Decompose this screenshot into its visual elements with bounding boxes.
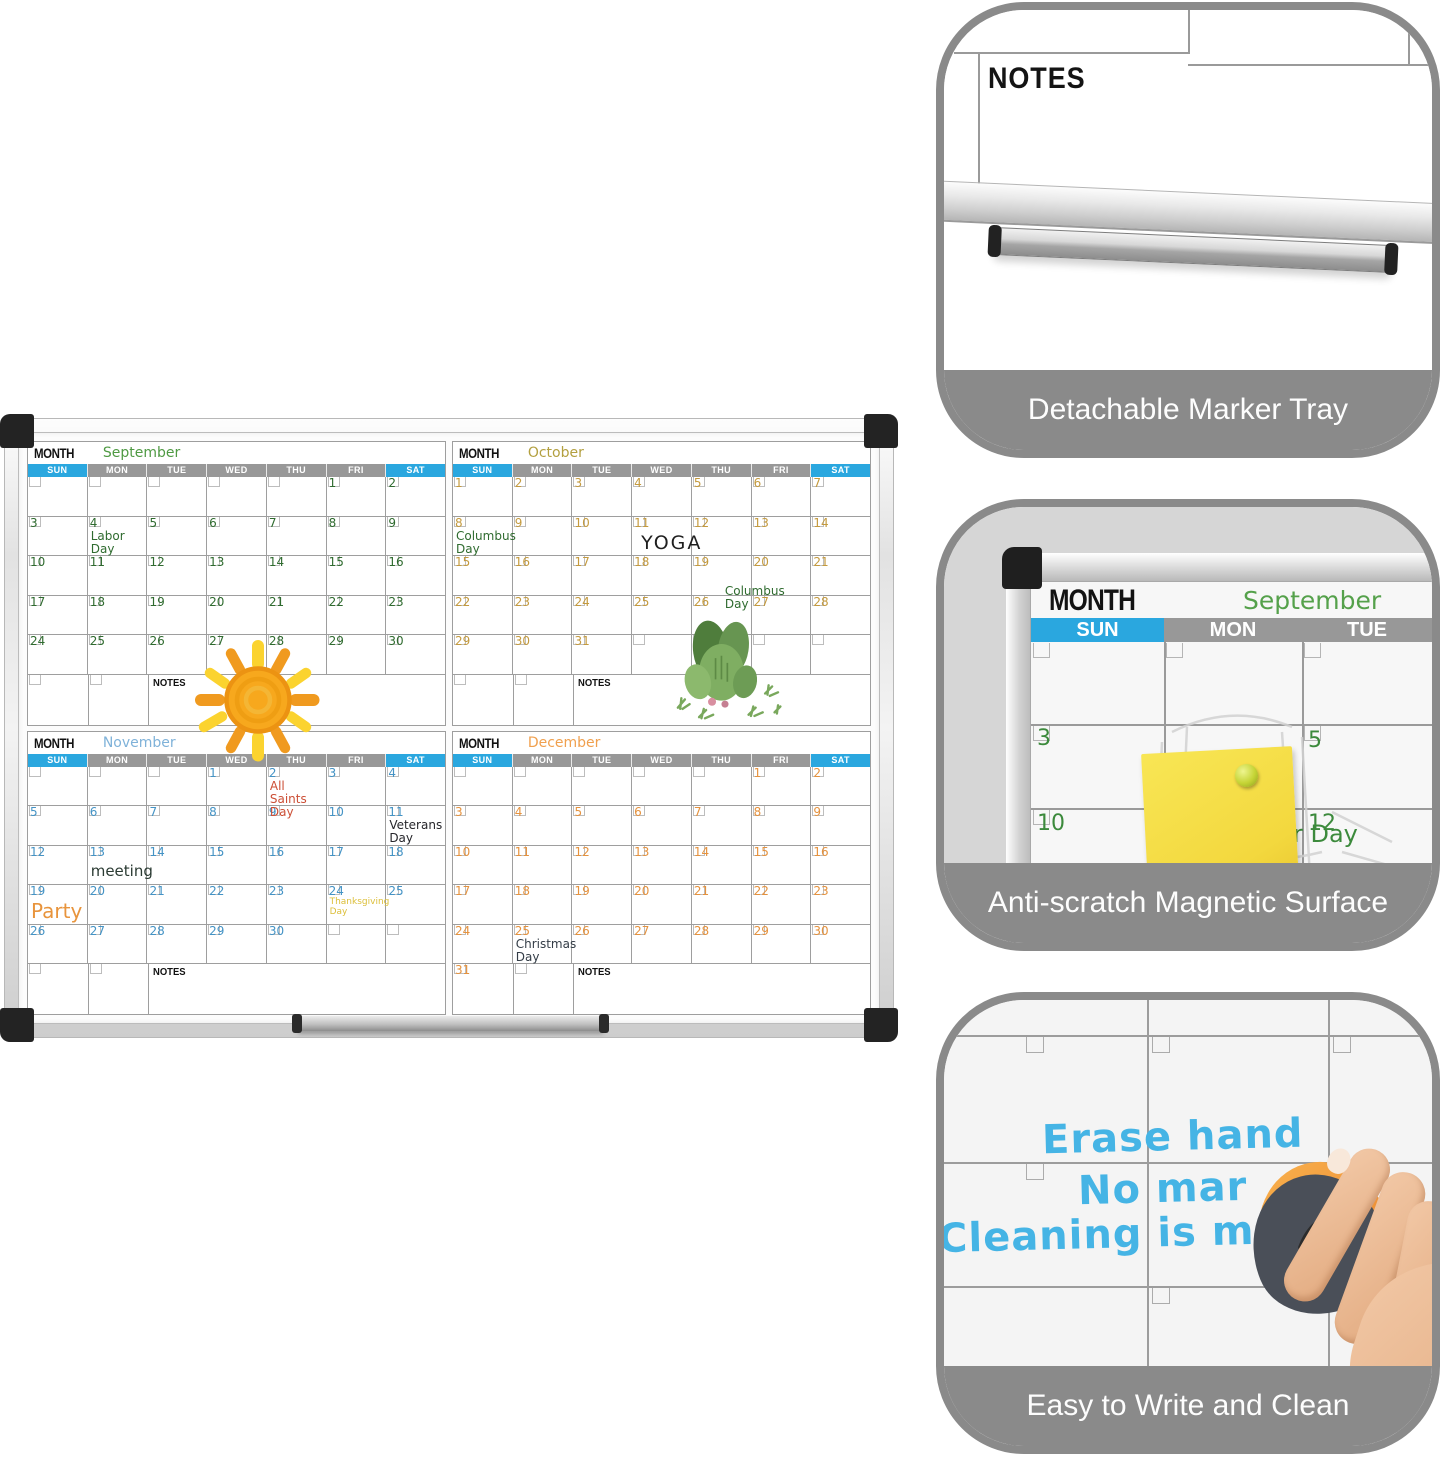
day-number: 23 <box>515 596 530 609</box>
date-corner-box <box>148 767 160 777</box>
date-corner-box <box>633 767 645 777</box>
day-number: 28 <box>149 925 164 938</box>
calendar-cell: 18 <box>88 596 148 635</box>
date-corner-box <box>328 925 340 935</box>
day-number: 6 <box>634 806 642 819</box>
month-name-handwriting: October <box>528 445 584 461</box>
day-number: 30 <box>269 925 284 938</box>
date-corner-box <box>573 767 585 777</box>
calendar-cell: 1 <box>207 767 267 806</box>
weekday-sat: SAT <box>386 754 445 767</box>
calendar-cell: 9 <box>513 517 573 556</box>
day-number: 30 <box>813 925 828 938</box>
grid-line <box>1188 10 1190 54</box>
day-number: 20 <box>634 885 649 898</box>
notes-area: NOTES <box>149 964 445 1014</box>
calendar-week-row: 2425Christmas Day2627282930 <box>453 924 870 964</box>
day-number: 29 <box>754 925 769 938</box>
grid-line <box>954 52 1188 54</box>
calendar-cell <box>88 767 148 806</box>
corner-cap-top-left <box>0 414 34 448</box>
calendar-cell: 22 <box>453 596 513 635</box>
month-label: MONTH <box>1049 584 1135 618</box>
date-corner-box <box>29 675 41 685</box>
day-number: 12 <box>149 556 164 569</box>
corner-cap-bottom-left <box>0 1008 34 1042</box>
notes-label: NOTES <box>153 966 186 978</box>
day-number: 3 <box>30 517 38 530</box>
day-number: 16 <box>813 846 828 859</box>
calendar-cell: 18 <box>386 846 445 885</box>
handwritten-note: meeting <box>91 863 153 880</box>
day-number: 15 <box>209 846 224 859</box>
day-number: 11 <box>90 556 105 569</box>
date-corner-box <box>1026 1037 1044 1053</box>
weekday-header: SUNMONTUEWEDTHUFRISAT <box>28 464 445 477</box>
calendar-cell <box>453 767 513 806</box>
calendar-week-row: 12All Saints Day34 <box>28 767 445 806</box>
calendar-cell: 11 <box>88 556 148 595</box>
day-number: 16 <box>269 846 284 859</box>
weekday-mon: MON <box>88 754 148 767</box>
day-number: 5 <box>574 806 582 819</box>
day-number: 6 <box>90 806 98 819</box>
notes-label: NOTES <box>153 677 186 689</box>
calendar-cell: 29 <box>207 925 267 964</box>
date-corner-box <box>268 477 280 487</box>
calendar-cell: 2 <box>513 477 573 516</box>
calendar-cell: 19Columbus Day <box>692 556 752 595</box>
calendar-grid: 12345678Columbus Day91011YOGA12131415161… <box>453 477 870 725</box>
weekday-thu: THU <box>692 754 752 767</box>
calendar-cell: 17 <box>453 885 513 924</box>
day-number: 16 <box>515 556 530 569</box>
calendar-cell: 31 <box>453 964 514 1014</box>
calendar-grid: 1234567891011121314151617181920212223242… <box>453 767 870 1015</box>
calendar-cell: 17 <box>572 556 632 595</box>
calendar-cell <box>267 477 327 516</box>
calendar-cell: 15 <box>453 556 513 595</box>
date-corner-box <box>1166 643 1183 658</box>
green-magnet-pin <box>1235 764 1258 787</box>
day-number: 8 <box>209 806 217 819</box>
calendar-cell <box>513 767 573 806</box>
date-corner-box <box>693 767 705 777</box>
month-label: MONTH <box>34 445 74 461</box>
calendar-cell <box>28 767 88 806</box>
day-number: 3 <box>455 806 463 819</box>
day-number: 15 <box>329 556 344 569</box>
calendar-cell: 14 <box>811 517 870 556</box>
day-number: 6 <box>754 477 762 490</box>
product-gallery: MONTHSeptemberSUNMONTUEWEDTHUFRISAT1234L… <box>0 0 1445 1457</box>
day-number: 13 <box>754 517 769 530</box>
calendar-cell <box>88 477 148 516</box>
day-number: 27 <box>634 925 649 938</box>
date-corner-box <box>90 675 102 685</box>
calendar-cell: 9 <box>811 806 870 845</box>
calendar-title: MONTHOctober <box>453 442 870 464</box>
calendar-cell: 26 <box>147 635 207 674</box>
day-number: 29 <box>209 925 224 938</box>
date-corner-box <box>89 477 101 487</box>
date-corner-box <box>812 635 824 645</box>
calendar-cell: 15 <box>207 846 267 885</box>
weekday-tue: TUE <box>1302 618 1432 642</box>
calendar-week-row: 19Party2021222324Thanksgiving Day25 <box>28 884 445 924</box>
date-corner-box <box>1152 1288 1170 1304</box>
board-surface-closeup: MONTH September SUN MON TUE <box>1030 581 1432 863</box>
calendar-cell: 14 <box>267 556 327 595</box>
date-corner-box <box>1333 1037 1351 1053</box>
calendar-cell: 7 <box>811 477 870 516</box>
calendar-cell: 30 <box>267 925 327 964</box>
calendar-cell: 8 <box>752 806 812 845</box>
weekday-tue: TUE <box>147 464 207 477</box>
day-number: 8 <box>329 517 337 530</box>
day-number: 19 <box>574 885 589 898</box>
day-number: 19 <box>694 556 709 569</box>
day-number: 16 <box>388 556 403 569</box>
weekday-tue: TUE <box>147 754 207 767</box>
calendar-cell: 20 <box>632 885 692 924</box>
calendar-cell <box>692 767 752 806</box>
weekday-sun: SUN <box>453 754 513 767</box>
day-number: 25 <box>388 885 403 898</box>
calendar-cell: 12 <box>572 846 632 885</box>
calendar-cell: 4 <box>386 767 445 806</box>
weekday-mon: MON <box>88 464 148 477</box>
calendar-cell: 4 <box>632 477 692 516</box>
day-number: 19 <box>149 596 164 609</box>
erase-demo-closeup: Erase hand No mar Cleaning is m <box>944 1000 1432 1366</box>
calendar-cell: 6 <box>632 806 692 845</box>
weekday-wed: WED <box>632 754 692 767</box>
calendar-cell: 4 <box>513 806 573 845</box>
calendar-week-row: 22232425262728 <box>453 595 870 635</box>
calendar-cell: 1 <box>453 477 513 516</box>
day-number: 26 <box>694 596 709 609</box>
day-number: 28 <box>694 925 709 938</box>
feature-caption: Detachable Marker Tray <box>944 370 1432 450</box>
grid-line <box>1188 64 1432 66</box>
calendar-cell: 16 <box>513 556 573 595</box>
notes-row: NOTES <box>28 963 445 1014</box>
calendar-october: MONTHOctoberSUNMONTUEWEDTHUFRISAT1234567… <box>452 441 871 726</box>
calendar-cell: 28 <box>811 596 870 635</box>
day-number: 10 <box>574 517 589 530</box>
date-corner-box <box>514 767 526 777</box>
calendar-cell <box>514 964 575 1014</box>
day-number: 20 <box>90 885 105 898</box>
calendar-cell: 28 <box>267 635 327 674</box>
day-number: 2 <box>515 477 523 490</box>
date-corner-box <box>693 635 705 645</box>
magnetic-surface-closeup: MONTH September SUN MON TUE <box>944 507 1432 863</box>
day-number: 10 <box>455 846 470 859</box>
day-number: 18 <box>90 596 105 609</box>
calendar-cell: 25 <box>88 635 148 674</box>
day-number: 27 <box>90 925 105 938</box>
day-number: 14 <box>694 846 709 859</box>
calendar-cell: 10 <box>327 806 387 845</box>
day-number: 30 <box>515 635 530 648</box>
calendar-cell: 10 <box>453 846 513 885</box>
calendar-cell: 14 <box>692 846 752 885</box>
notes-label: NOTES <box>988 62 1086 96</box>
day-number: 17 <box>329 846 344 859</box>
calendar-cell: 17 <box>28 596 88 635</box>
weekday-sat: SAT <box>811 754 870 767</box>
corner-cap-bottom-right <box>864 1008 898 1042</box>
calendar-september: MONTHSeptemberSUNMONTUEWEDTHUFRISAT1234L… <box>27 441 446 726</box>
weekday-mon: MON <box>1164 618 1302 642</box>
date-corner-box <box>753 635 765 645</box>
calendar-cell <box>28 477 88 516</box>
calendar-cell: 21 <box>811 556 870 595</box>
calendar-cell: 30 <box>386 635 445 674</box>
notes-label: NOTES <box>578 677 611 689</box>
calendar-cell: 4Labor Day <box>88 517 148 556</box>
day-number: 1 <box>329 477 337 490</box>
calendar-cell: 21 <box>147 885 207 924</box>
day-number: 3 <box>574 477 582 490</box>
calendar-week-row: 17181920212223 <box>453 884 870 924</box>
day-number: 17 <box>30 596 45 609</box>
yellow-sticky-note <box>1141 746 1300 863</box>
calendar-cell: 24Thanksgiving Day <box>327 885 387 924</box>
frame-rail-left <box>1006 553 1030 863</box>
day-number: 8 <box>455 517 463 530</box>
day-number: 4 <box>634 477 642 490</box>
calendar-cell: 11YOGA <box>632 517 692 556</box>
calendar-week-row: 10111213141516 <box>453 845 870 885</box>
day-number: 19 <box>30 885 45 898</box>
calendar-cell: 8 <box>207 806 267 845</box>
calendar-cell: 15 <box>752 846 812 885</box>
calendar-cell: 5 <box>572 806 632 845</box>
day-number: 25 <box>515 925 530 938</box>
calendar-grid: 1234Labor Day567891011121314151617181920… <box>28 477 445 725</box>
day-number: 7 <box>269 517 277 530</box>
date-corner-box <box>454 675 466 685</box>
notes-row: NOTES <box>453 674 870 725</box>
calendar-cell: 23 <box>386 596 445 635</box>
calendar-cell: 21 <box>267 596 327 635</box>
calendar-cell: 22 <box>327 596 387 635</box>
calendar-cell: 29 <box>752 925 812 964</box>
calendar-cell: 11 <box>513 846 573 885</box>
day-number: 20 <box>754 556 769 569</box>
weekday-header: SUNMONTUEWEDTHUFRISAT <box>453 754 870 767</box>
calendar-cell <box>453 675 514 725</box>
month-name-handwriting: September <box>103 445 180 461</box>
calendar-cell: 7 <box>692 806 752 845</box>
day-number: 4 <box>90 517 98 530</box>
day-number: 21 <box>813 556 828 569</box>
notes-row: 31NOTES <box>453 963 870 1014</box>
weekday-wed: WED <box>207 464 267 477</box>
frame-rail-top <box>1006 553 1432 581</box>
weekday-fri: FRI <box>752 754 812 767</box>
calendar-cell: 6 <box>752 477 812 516</box>
date-corner-box <box>148 477 160 487</box>
feature-caption: Anti-scratch Magnetic Surface <box>944 863 1432 943</box>
date-corner-box <box>454 767 466 777</box>
date-corner-box <box>90 964 102 974</box>
calendar-cell: 24 <box>572 596 632 635</box>
handwritten-note: Columbus Day <box>456 530 516 556</box>
calendar-cell <box>28 675 89 725</box>
calendar-cell <box>28 964 89 1014</box>
date-corner-box <box>89 767 101 777</box>
handwritten-note: All Saints Day <box>270 780 307 820</box>
calendar-cell: 16 <box>811 846 870 885</box>
weekday-sun: SUN <box>28 464 88 477</box>
notes-row: NOTES <box>28 674 445 725</box>
calendar-cell: 3 <box>28 517 88 556</box>
calendar-week-row: 1213meeting1415161718 <box>28 845 445 885</box>
feature-panel-marker-tray: NOTES Detachable Marker Tray <box>936 2 1440 458</box>
day-number: 23 <box>388 596 403 609</box>
calendar-grid: 12All Saints Day34567891011Veterans Day1… <box>28 767 445 1015</box>
day-number: 1 <box>209 767 217 780</box>
marker-text-line3: Cleaning is m <box>944 1208 1255 1262</box>
day-number: 31 <box>455 964 470 977</box>
feature-panel-write-clean: Erase hand No mar Cleaning is m <box>936 992 1440 1454</box>
day-number: 28 <box>269 635 284 648</box>
calendar-cell: 23 <box>267 885 327 924</box>
calendar-cell: 3 <box>453 806 513 845</box>
calendar-cell: 19 <box>147 596 207 635</box>
calendar-cell: 27 <box>207 635 267 674</box>
calendar-title: MONTHDecember <box>453 732 870 754</box>
day-number: 9 <box>813 806 821 819</box>
calendar-week-row: 34Labor Day56789 <box>28 516 445 556</box>
calendar-november: MONTHNovemberSUNMONTUEWEDTHUFRISAT12All … <box>27 731 446 1016</box>
day-number: 5 <box>149 517 157 530</box>
calendar-cell: 5 <box>692 477 752 516</box>
day-number: 26 <box>149 635 164 648</box>
calendar-cell: 13 <box>752 517 812 556</box>
handwritten-note: YOGA <box>641 533 702 554</box>
day-number: 9 <box>515 517 523 530</box>
day-number: 29 <box>455 635 470 648</box>
weekday-sun: SUN <box>1031 618 1164 642</box>
day-number: 24 <box>455 925 470 938</box>
date-corner-box <box>29 767 41 777</box>
calendar-cell: 6 <box>207 517 267 556</box>
day-number: 17 <box>455 885 470 898</box>
day-number: 21 <box>269 596 284 609</box>
whiteboard-surface: MONTHSeptemberSUNMONTUEWEDTHUFRISAT1234L… <box>19 433 879 1023</box>
calendar-cell: 22 <box>207 885 267 924</box>
grid-line <box>1408 10 1410 66</box>
calendar-cell <box>572 767 632 806</box>
calendar-cell: 27 <box>88 925 148 964</box>
calendar-cell: 1 <box>752 767 812 806</box>
grid-line <box>944 1035 1432 1037</box>
day-number: 22 <box>329 596 344 609</box>
calendar-cell: 31 <box>572 635 632 674</box>
date-corner-box <box>1304 643 1321 658</box>
date-corner-box <box>208 477 220 487</box>
month-label: MONTH <box>459 445 499 461</box>
weekday-thu: THU <box>267 754 327 767</box>
date-corner-box <box>1026 1164 1044 1180</box>
day-number: 13 <box>209 556 224 569</box>
calendar-cell: 27 <box>632 925 692 964</box>
calendar-cell <box>327 925 387 964</box>
handwritten-note: Veterans Day <box>389 819 442 845</box>
calendar-cell: 12 <box>28 846 88 885</box>
calendar-cell: 26 <box>28 925 88 964</box>
calendar-week-row: 1234567 <box>453 477 870 516</box>
day-number: 12 <box>574 846 589 859</box>
day-number: 11 <box>515 846 530 859</box>
day-number: 2 <box>388 477 396 490</box>
day-number: 17 <box>574 556 589 569</box>
day-number: 31 <box>574 635 589 648</box>
calendar-cell: 5 <box>28 806 88 845</box>
date-corner-box <box>387 925 399 935</box>
feature-caption: Easy to Write and Clean <box>944 1366 1432 1446</box>
weekday-header: SUNMONTUEWEDTHUFRISAT <box>28 754 445 767</box>
day-number: 3 <box>329 767 337 780</box>
day-number: 10 <box>329 806 344 819</box>
calendar-cell: 23 <box>811 885 870 924</box>
day-number: 24 <box>30 635 45 648</box>
calendar-cell: 24 <box>28 635 88 674</box>
date-corner-box <box>29 477 41 487</box>
day-number: 21 <box>694 885 709 898</box>
calendar-cell: 25 <box>632 596 692 635</box>
day-number: 7 <box>694 806 702 819</box>
day-number: 23 <box>269 885 284 898</box>
handwritten-note: Party <box>31 900 82 922</box>
calendar-cell: 29 <box>453 635 513 674</box>
calendar-week-row: 1516171819Columbus Day2021 <box>453 555 870 595</box>
marker-text-line2: No mar <box>1077 1164 1247 1214</box>
calendar-cell: 2 <box>386 477 445 516</box>
calendar-cell: 16 <box>386 556 445 595</box>
day-number: 6 <box>209 517 217 530</box>
handwritten-note: Labor Day <box>91 530 147 556</box>
day-number: 18 <box>634 556 649 569</box>
calendar-cell <box>692 635 752 674</box>
notes-area: NOTES <box>574 675 870 725</box>
day-number: 4 <box>515 806 523 819</box>
calendar-cell: 19Party <box>28 885 88 924</box>
calendar-cell: 7 <box>147 806 207 845</box>
day-number: 5 <box>30 806 38 819</box>
day-number: 21 <box>149 885 164 898</box>
day-number: 26 <box>30 925 45 938</box>
day-number: 29 <box>329 635 344 648</box>
day-number: 7 <box>149 806 157 819</box>
calendar-cell: 5 <box>147 517 207 556</box>
calendar-cell: 17 <box>327 846 387 885</box>
calendar-cell <box>207 477 267 516</box>
month-label: MONTH <box>34 735 74 751</box>
day-number: 1 <box>455 477 463 490</box>
weekday-wed: WED <box>207 754 267 767</box>
day-number: 10 <box>30 556 45 569</box>
date-corner-box <box>515 675 527 685</box>
day-number: 15 <box>455 556 470 569</box>
marker-tray-closeup: NOTES <box>944 10 1432 370</box>
day-number: 22 <box>209 885 224 898</box>
